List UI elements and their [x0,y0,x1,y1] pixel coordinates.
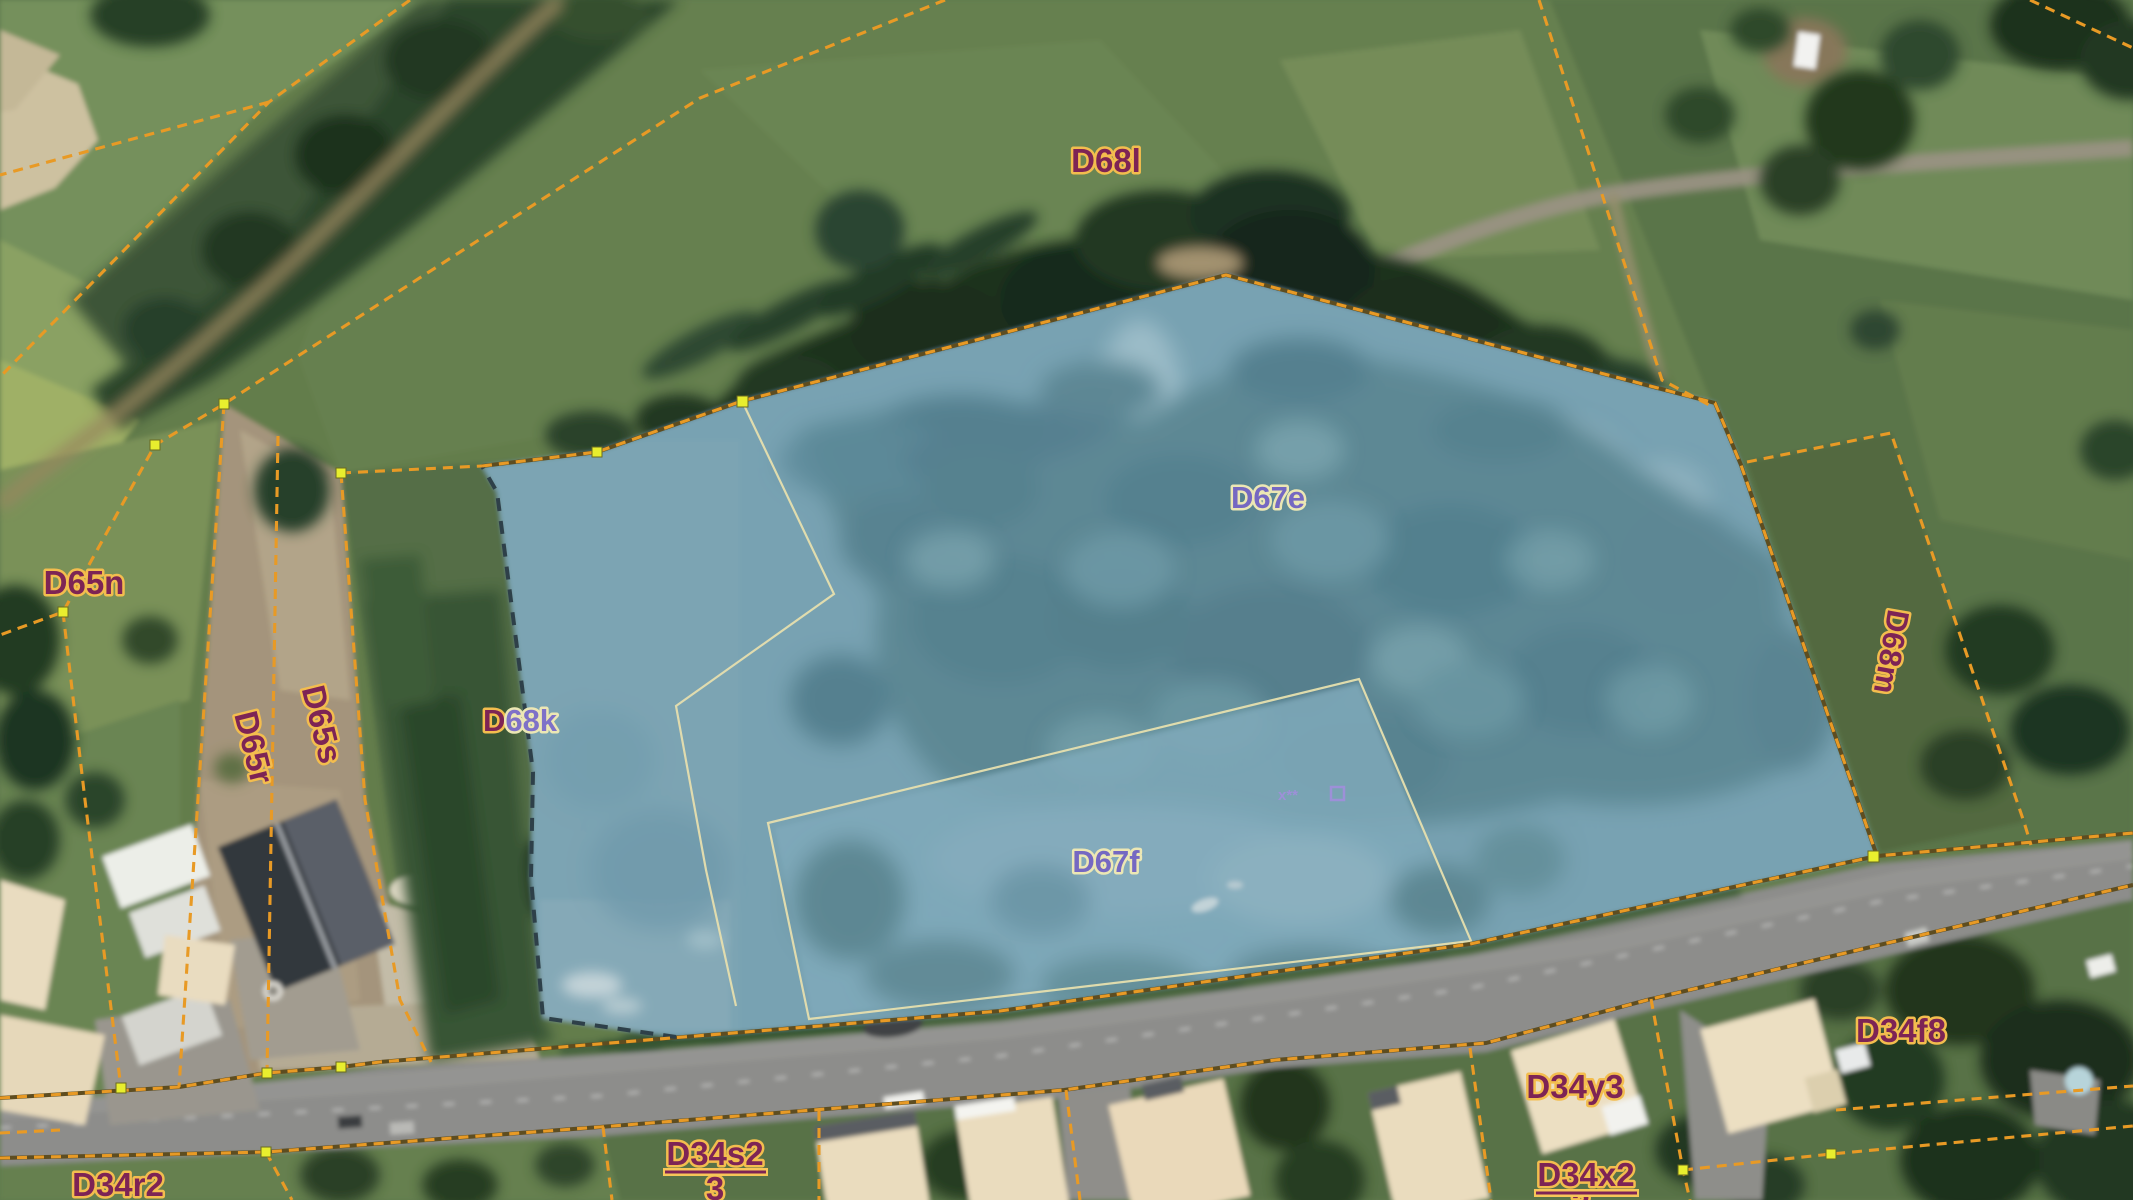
svg-text:D34f8: D34f8 [1856,1012,1946,1049]
svg-text:D34s2: D34s2 [666,1135,763,1172]
svg-text:D34r2: D34r2 [72,1166,164,1200]
svg-text:D67f: D67f [1072,844,1140,879]
svg-text:D67e: D67e [1231,480,1305,515]
svg-text:D68k: D68k [483,703,558,738]
svg-text:D68l: D68l [1071,142,1141,179]
svg-text:D34y3: D34y3 [1526,1068,1623,1105]
svg-text:x**: x** [1278,787,1298,804]
svg-text:D65n: D65n [44,564,125,601]
